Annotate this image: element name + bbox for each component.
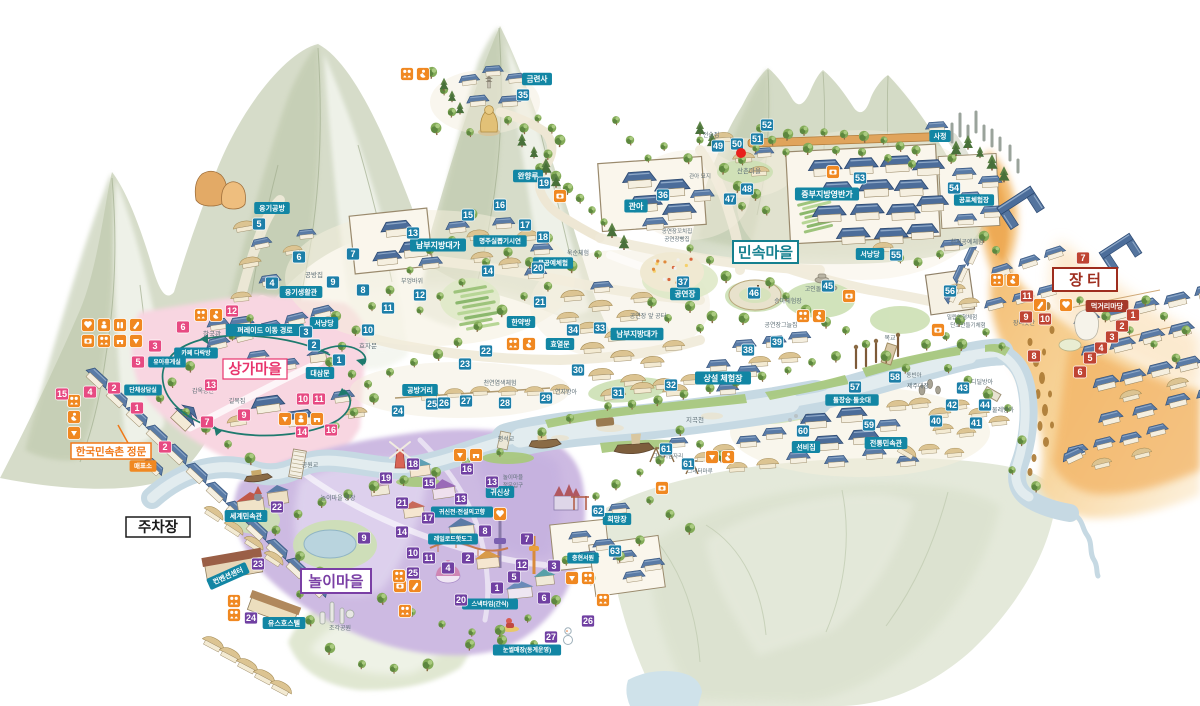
svg-text:18: 18 [538, 232, 548, 242]
svg-text:50: 50 [732, 139, 742, 149]
svg-text:11: 11 [314, 394, 324, 404]
svg-text:8: 8 [482, 526, 487, 536]
svg-text:51: 51 [752, 134, 762, 144]
svg-text:30: 30 [573, 365, 583, 375]
svg-text:지곡천: 지곡천 [686, 415, 704, 424]
svg-text:옹기생활관: 옹기생활관 [285, 287, 318, 296]
svg-text:25: 25 [427, 399, 437, 409]
svg-text:돌장승·돌솟대: 돌장승·돌솟대 [833, 395, 871, 404]
svg-text:15: 15 [463, 210, 473, 220]
svg-text:41: 41 [971, 418, 981, 428]
svg-text:4: 4 [1098, 343, 1103, 353]
svg-text:산촌마을: 산촌마을 [737, 166, 761, 175]
svg-text:42: 42 [947, 400, 957, 410]
svg-text:25: 25 [408, 568, 418, 578]
svg-text:59: 59 [864, 420, 874, 430]
svg-text:명주실뽑기시연: 명주실뽑기시연 [479, 236, 521, 245]
svg-text:21: 21 [397, 498, 407, 508]
svg-text:10: 10 [298, 394, 308, 404]
svg-text:56: 56 [945, 286, 955, 296]
svg-text:놀이마을 광장: 놀이마을 광장 [321, 494, 356, 502]
svg-text:눈썰매장(동계운영): 눈썰매장(동계운영) [503, 646, 551, 654]
svg-text:9: 9 [1023, 312, 1028, 322]
svg-text:34: 34 [568, 325, 578, 335]
svg-text:9: 9 [241, 410, 246, 420]
svg-text:효열문: 효열문 [550, 339, 570, 348]
svg-text:승마체험장: 승마체험장 [774, 297, 802, 305]
svg-text:장 터: 장 터 [1069, 271, 1101, 289]
svg-text:7: 7 [524, 534, 529, 544]
svg-text:전술집: 전술집 [703, 131, 720, 139]
svg-text:관아 묘지: 관아 묘지 [689, 172, 711, 180]
svg-text:49: 49 [713, 141, 723, 151]
svg-text:5: 5 [256, 219, 261, 229]
svg-text:공방집: 공방집 [305, 270, 323, 279]
svg-text:61: 61 [683, 459, 693, 469]
svg-text:13: 13 [456, 494, 466, 504]
svg-text:14: 14 [483, 266, 493, 276]
svg-text:26: 26 [583, 616, 593, 626]
svg-text:1: 1 [494, 583, 499, 593]
svg-text:22: 22 [481, 346, 491, 356]
svg-text:26: 26 [439, 398, 449, 408]
svg-text:53: 53 [855, 173, 865, 183]
svg-text:38: 38 [743, 345, 753, 355]
svg-text:27: 27 [461, 396, 471, 406]
svg-text:스낵타임(간식): 스낵타임(간식) [471, 600, 508, 608]
svg-text:20: 20 [456, 595, 466, 605]
svg-text:고인돌: 고인돌 [805, 286, 822, 293]
svg-text:연자방아: 연자방아 [555, 388, 578, 396]
svg-text:6: 6 [541, 593, 546, 603]
svg-text:귀신상: 귀신상 [490, 487, 510, 496]
svg-text:공포체험장: 공포체험장 [959, 195, 989, 204]
svg-text:물레방아: 물레방아 [992, 406, 1015, 414]
svg-text:카페 다락방: 카페 다락방 [181, 349, 211, 357]
svg-text:29: 29 [541, 393, 551, 403]
svg-text:3: 3 [1109, 332, 1114, 342]
svg-text:23: 23 [253, 559, 263, 569]
svg-text:대삼문: 대삼문 [310, 368, 330, 377]
svg-text:밀랍인형체험: 밀랍인형체험 [947, 313, 977, 321]
svg-text:48: 48 [742, 184, 752, 194]
svg-text:54: 54 [949, 183, 959, 193]
svg-text:중부지방영반가: 중부지방영반가 [801, 189, 853, 199]
svg-text:7: 7 [204, 417, 209, 427]
svg-text:목교: 목교 [884, 335, 896, 342]
svg-text:공연장빵집: 공연장빵집 [664, 235, 689, 243]
svg-text:매표소: 매표소 [134, 461, 152, 470]
svg-text:1: 1 [336, 355, 341, 365]
svg-text:32: 32 [666, 380, 676, 390]
svg-text:2: 2 [111, 383, 116, 393]
svg-text:조각공원: 조각공원 [329, 624, 351, 632]
svg-text:28: 28 [500, 398, 510, 408]
svg-text:6: 6 [296, 252, 301, 262]
svg-text:61: 61 [661, 444, 671, 454]
svg-text:44: 44 [980, 400, 990, 410]
svg-text:천연염색체험: 천연염색체험 [483, 379, 516, 387]
svg-text:33: 33 [595, 323, 605, 333]
svg-text:먹거리마당: 먹거리마당 [1091, 301, 1124, 310]
svg-text:63: 63 [610, 546, 620, 556]
svg-text:천지공예체험: 천지공예체험 [950, 238, 983, 246]
svg-text:55: 55 [891, 250, 901, 260]
svg-text:금련사: 금련사 [527, 74, 548, 84]
svg-text:유스호스텔: 유스호스텔 [268, 618, 301, 627]
svg-text:한약방: 한약방 [511, 317, 531, 326]
svg-text:4: 4 [445, 563, 450, 573]
svg-text:15: 15 [57, 389, 67, 399]
svg-text:60: 60 [798, 426, 808, 436]
svg-text:47: 47 [725, 194, 735, 204]
svg-text:9: 9 [330, 277, 335, 287]
svg-text:15: 15 [424, 478, 434, 488]
svg-text:귀신전·전설의고향: 귀신전·전설의고향 [439, 508, 486, 516]
svg-text:8: 8 [360, 285, 365, 295]
svg-text:16: 16 [495, 200, 505, 210]
svg-text:27: 27 [546, 632, 556, 642]
svg-text:24: 24 [393, 406, 403, 416]
svg-text:유아휴게실: 유아휴게실 [153, 358, 181, 366]
svg-text:10: 10 [408, 548, 418, 558]
svg-text:40: 40 [931, 416, 941, 426]
svg-text:한국관: 한국관 [203, 329, 221, 338]
svg-text:5: 5 [135, 357, 140, 367]
svg-text:디딜방아: 디딜방아 [971, 378, 994, 386]
svg-text:20: 20 [533, 263, 543, 273]
svg-text:43: 43 [958, 383, 968, 393]
svg-text:옥순체험: 옥순체험 [567, 249, 589, 257]
svg-text:놀이마을: 놀이마을 [503, 473, 523, 481]
svg-text:한국민속촌 정문: 한국민속촌 정문 [76, 445, 147, 458]
svg-text:13: 13 [487, 477, 497, 487]
svg-text:선비집: 선비집 [796, 442, 815, 451]
svg-text:놀이마을: 놀이마을 [308, 573, 363, 590]
svg-text:14: 14 [297, 427, 307, 437]
svg-text:길목집: 길목집 [229, 397, 246, 405]
svg-text:7: 7 [350, 249, 355, 259]
svg-text:2: 2 [1119, 321, 1124, 331]
svg-text:12: 12 [415, 290, 425, 300]
svg-text:39: 39 [772, 337, 782, 347]
svg-text:13: 13 [408, 228, 418, 238]
svg-text:18: 18 [408, 459, 418, 469]
svg-text:9: 9 [361, 533, 366, 543]
svg-text:12: 12 [517, 560, 527, 570]
svg-text:공연장 앞 공터: 공연장 앞 공터 [630, 312, 666, 320]
svg-text:남부지방대가: 남부지방대가 [616, 329, 657, 339]
svg-text:17: 17 [423, 513, 433, 523]
svg-text:상가마을: 상가마을 [228, 361, 281, 378]
svg-text:완향루: 완향루 [518, 171, 539, 181]
svg-text:공연장꼬치집: 공연장꼬치집 [662, 227, 692, 235]
svg-text:46: 46 [749, 288, 759, 298]
svg-text:5: 5 [511, 572, 516, 582]
svg-text:2: 2 [311, 340, 316, 350]
svg-text:사정: 사정 [934, 131, 947, 140]
svg-text:동빈아: 동빈아 [906, 371, 921, 379]
svg-text:8: 8 [1031, 351, 1036, 361]
svg-text:4: 4 [269, 278, 274, 288]
svg-text:1: 1 [1130, 310, 1135, 320]
svg-text:12: 12 [227, 306, 237, 316]
svg-text:제주대장: 제주대장 [907, 382, 930, 390]
svg-text:희망장: 희망장 [607, 514, 627, 523]
svg-text:17: 17 [520, 220, 530, 230]
svg-text:2: 2 [162, 442, 167, 452]
svg-text:퍼레이드 이동 경로: 퍼레이드 이동 경로 [237, 325, 293, 334]
svg-text:10: 10 [1040, 314, 1050, 324]
svg-text:36: 36 [658, 190, 668, 200]
svg-text:5: 5 [1087, 353, 1092, 363]
svg-text:16: 16 [462, 464, 472, 474]
svg-text:19: 19 [539, 178, 549, 188]
svg-text:6: 6 [180, 322, 185, 332]
svg-text:7: 7 [1080, 253, 1085, 263]
svg-text:11: 11 [383, 303, 393, 313]
svg-text:10: 10 [363, 325, 373, 335]
svg-text:14: 14 [397, 527, 407, 537]
svg-text:24: 24 [246, 613, 256, 623]
svg-text:11: 11 [1022, 291, 1032, 301]
svg-text:2: 2 [465, 553, 470, 563]
svg-text:3: 3 [152, 341, 157, 351]
svg-text:서낭당: 서낭당 [314, 318, 334, 327]
svg-text:공원교: 공원교 [302, 461, 319, 469]
svg-text:세계민속관: 세계민속관 [230, 511, 263, 520]
svg-text:옹기공방: 옹기공방 [259, 203, 285, 212]
svg-text:16: 16 [326, 425, 336, 435]
svg-text:11: 11 [424, 553, 434, 563]
svg-text:공방거리: 공방거리 [407, 385, 433, 394]
svg-text:45: 45 [823, 281, 833, 291]
svg-text:남부지방대가: 남부지방대가 [416, 240, 461, 250]
svg-text:58: 58 [890, 372, 900, 382]
svg-text:충현서원: 충현서원 [572, 554, 594, 562]
svg-text:3: 3 [551, 561, 556, 571]
svg-text:부엉바위: 부엉바위 [401, 277, 423, 285]
svg-text:전통민속관: 전통민속관 [870, 438, 903, 447]
svg-text:52: 52 [762, 120, 772, 130]
svg-text:상설 체험장: 상설 체험장 [703, 373, 743, 383]
svg-text:민속마을: 민속마을 [738, 244, 793, 261]
svg-text:22: 22 [272, 502, 282, 512]
svg-text:37: 37 [678, 277, 688, 287]
svg-text:13: 13 [206, 380, 216, 390]
svg-text:6: 6 [1077, 367, 1082, 377]
svg-text:관아: 관아 [629, 201, 644, 211]
svg-text:평석교: 평석교 [498, 435, 515, 443]
svg-text:62: 62 [593, 506, 603, 516]
svg-text:단체상담실: 단체상담실 [129, 386, 157, 394]
svg-text:단소만들기체험: 단소만들기체험 [950, 321, 985, 329]
svg-text:효자문: 효자문 [359, 341, 377, 350]
svg-text:주차장: 주차장 [138, 518, 179, 536]
svg-text:4: 4 [87, 387, 92, 397]
svg-text:1: 1 [134, 403, 139, 413]
svg-text:공연장: 공연장 [675, 289, 696, 299]
svg-text:23: 23 [460, 359, 470, 369]
svg-text:31: 31 [613, 388, 623, 398]
svg-text:21: 21 [535, 297, 545, 307]
svg-text:3: 3 [303, 327, 308, 337]
svg-text:57: 57 [850, 382, 860, 392]
svg-text:공연장그늘집: 공연장그늘집 [764, 321, 797, 329]
svg-text:19: 19 [381, 473, 391, 483]
svg-text:35: 35 [518, 90, 528, 100]
svg-text:레일로드핫도그: 레일로드핫도그 [434, 535, 473, 543]
svg-text:서낭당: 서낭당 [860, 249, 880, 258]
